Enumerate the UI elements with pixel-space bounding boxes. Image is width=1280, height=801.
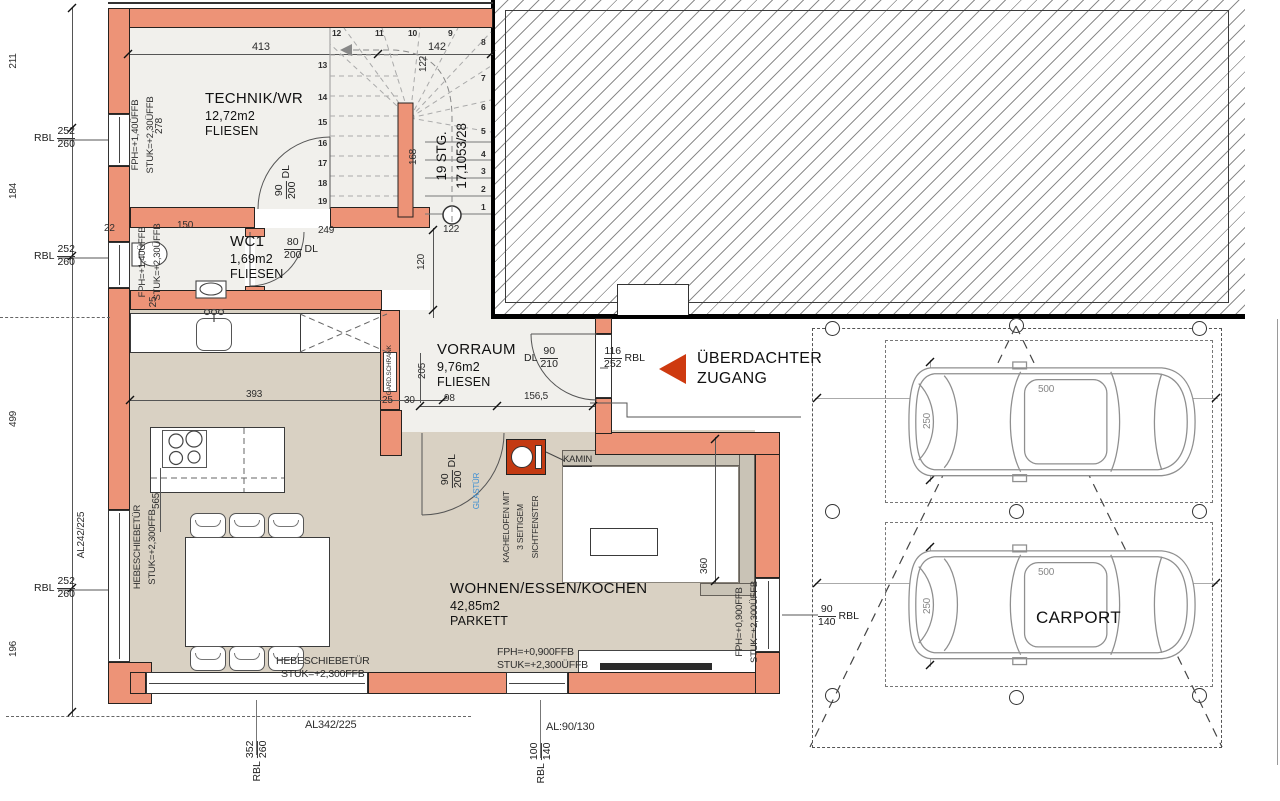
step-number: 19 [318,197,327,206]
room-floor: FLIESEN [205,124,303,140]
dim-250-car2: 250 [923,594,933,618]
dim-30: 30 [404,396,415,406]
al-label-south: AL342/225 [305,720,356,731]
room-floor: PARKETT [450,614,647,630]
room-name: WOHNEN/ESSEN/KOCHEN [450,580,647,599]
dim-22: 22 [104,224,115,234]
dim-500-car2: 500 [1038,568,1054,578]
callout-dl-entry: DL 90210 [524,346,558,370]
callout-rbl-door-west: RBL 252260 [34,576,75,600]
al-label-window: AL:90/130 [546,722,594,733]
callout-dl-wc: 80200 DL [284,237,318,261]
room-area: 12,72m2 [205,109,303,125]
dim-98: 98 [444,394,455,404]
room-area: 1,69m2 [230,252,284,268]
dim-25-wc: 25 [149,290,159,314]
dim-393: 393 [246,390,262,400]
entrance-label: ÜBERDACHTER ZUGANG [697,349,822,389]
room-label-technik: TECHNIK/WR 12,72m2 FLIESEN [205,90,303,140]
step-number: 17 [318,159,327,168]
callout-rbl-window-east: 90140 RBL [818,604,859,628]
drawing-overlay [0,0,1280,801]
wardrobe-label: GARD.SCHRANK [387,348,394,392]
callout-rbl-window-wc: RBL 252260 [34,244,75,268]
step-number: 6 [481,103,486,112]
room-label-wc: WC1 1,69m2 FLIESEN [230,233,284,283]
kachelofen-label: KACHELOFEN MIT 3 SEITIGEM SICHTFENSTER [506,489,536,565]
al-label-west: AL242/225 [77,505,87,565]
callout-dl-technik: 90200 DL [274,160,298,204]
step-number: 11 [375,29,384,38]
window-spec-technik: FPH=+1,40ÜFFBSTUK=+2,30ÜFFB [131,90,155,180]
kamin-label: KAMIN [563,455,592,467]
dim-500-car1: 500 [1038,385,1054,395]
room-area: 42,85m2 [450,599,647,615]
callout-rbl-hst-south: RBL 352260 [245,739,269,783]
dim-156-5: 156,5 [524,392,548,402]
dim-360: 360 [700,554,710,578]
dim-142: 142 [428,42,446,53]
dim-205: 205 [418,359,428,383]
step-number: 8 [481,38,486,47]
door-spec-hst-south: HEBESCHIEBETÜRSTUK=+2,300FFB [276,655,369,681]
room-floor: FLIESEN [230,267,284,283]
room-label-carport: CARPORT [1036,607,1121,628]
dim-499: 499 [9,407,19,431]
step-number: 7 [481,74,486,83]
callout-rbl-window-technik: RBL 252260 [34,126,75,150]
step-number: 10 [408,29,417,38]
step-number: 13 [318,61,327,70]
room-name: TECHNIK/WR [205,90,303,109]
step-number: 5 [481,127,486,136]
room-name: VORRAUM [437,341,516,360]
step-number: 9 [448,29,453,38]
dim-211: 211 [9,49,19,73]
dim-196: 196 [9,637,19,661]
dim-250-car1: 250 [923,409,933,433]
callout-rbl-entry: 116252 RBL [604,346,645,370]
dim-122-a: 122 [419,52,429,76]
dim-184: 184 [9,179,19,203]
dim-168: 168 [409,145,419,169]
entrance-label-line2: ZUGANG [697,369,822,389]
step-number: 12 [332,29,341,38]
stair-label: 19 STG. 17,1053/28 [436,108,468,204]
step-number: 2 [481,185,486,194]
window-spec-east: FPH=+0,900FFBSTUK=+2,300ÜFFB [735,578,759,666]
step-number: 3 [481,167,486,176]
step-number: 16 [318,139,327,148]
room-floor: FLIESEN [437,375,516,391]
step-number: 18 [318,179,327,188]
dim-278: 278 [155,114,165,138]
room-area: 9,76m2 [437,360,516,376]
entrance-arrow-icon [659,354,686,384]
dim-120: 120 [417,250,427,274]
dim-413: 413 [252,42,270,53]
window-spec-south: FPH=+0,900FFBSTUK=+2,300ÜFFB [497,646,588,672]
entrance-label-line1: ÜBERDACHTER [697,349,822,369]
step-number: 15 [318,118,327,127]
room-label-wohnen: WOHNEN/ESSEN/KOCHEN 42,85m2 PARKETT [450,580,647,630]
step-number: 14 [318,93,327,102]
glastuer-label: GLASTÜR [473,470,481,512]
dim-25-niche: 25 [382,396,393,406]
dim-150: 150 [177,221,193,231]
step-number: 1 [481,203,486,212]
callout-dl-glastuer: 90200 DL [440,449,464,493]
room-name: WC1 [230,233,284,252]
room-label-vorraum: VORRAUM 9,76m2 FLIESEN [437,341,516,391]
floor-plan: TECHNIK/WR 12,72m2 FLIESEN WC1 1,69m2 FL… [0,0,1280,801]
dim-565: 565 [152,489,162,513]
dim-249: 249 [318,226,334,236]
dim-122-b: 122 [443,225,459,235]
step-number: 4 [481,150,486,159]
door-spec-hst-west: HEBESCHIEBETÜRSTUK=+2,300FFB [133,499,157,595]
callout-rbl-window-south: RBL 100140 [529,741,553,785]
